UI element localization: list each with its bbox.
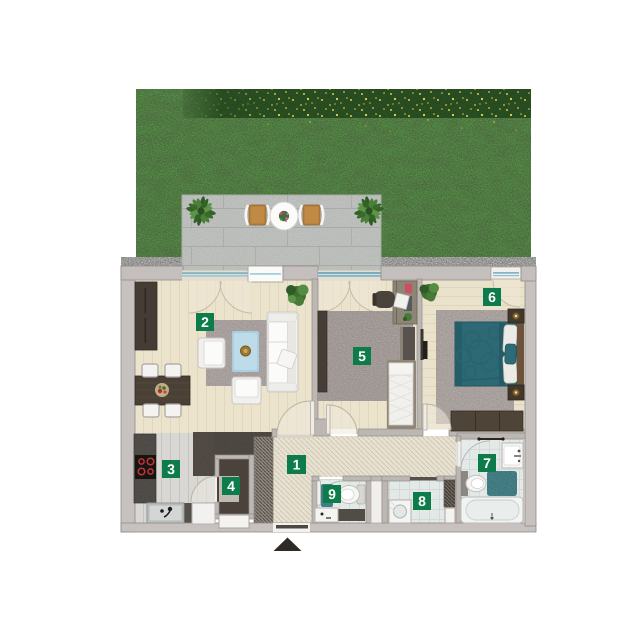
- svg-text:3: 3: [167, 461, 175, 477]
- svg-text:2: 2: [201, 314, 209, 330]
- svg-text:9: 9: [328, 486, 336, 502]
- svg-text:6: 6: [488, 289, 496, 305]
- svg-text:4: 4: [227, 478, 235, 494]
- svg-text:5: 5: [358, 348, 366, 364]
- svg-text:8: 8: [418, 493, 426, 509]
- svg-text:7: 7: [483, 455, 491, 471]
- svg-text:1: 1: [293, 456, 301, 472]
